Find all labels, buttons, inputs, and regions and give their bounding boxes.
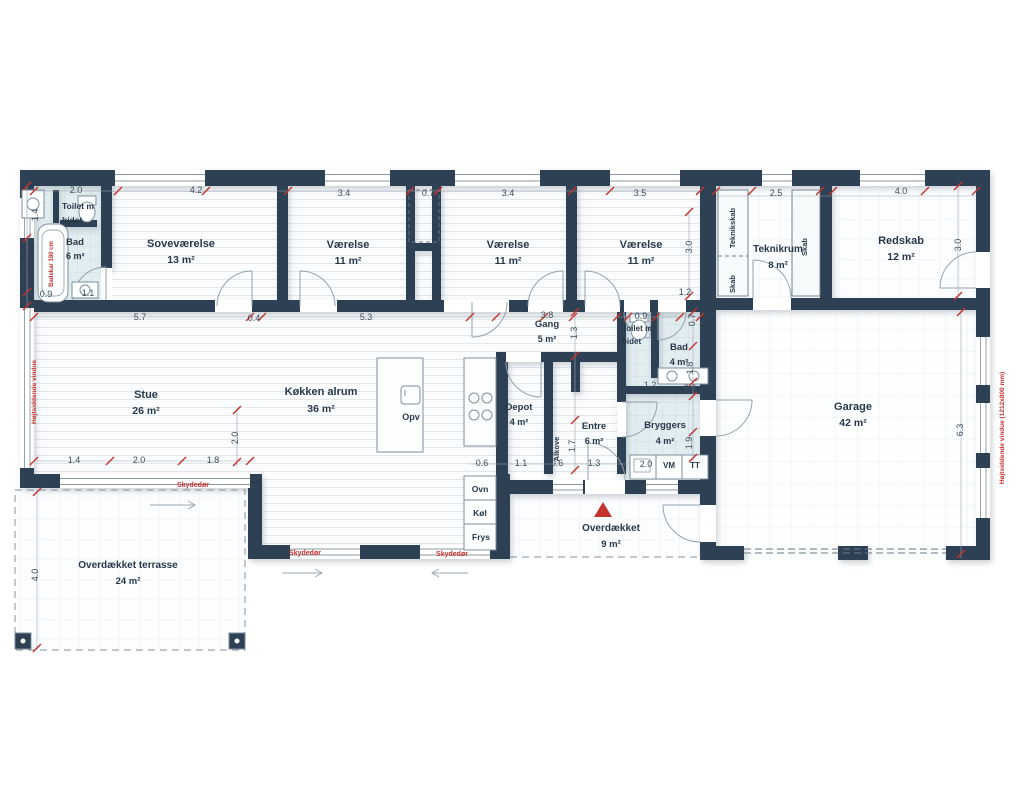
room-area-label: 9 m² [601, 539, 621, 550]
dimension-label: 0.7 [687, 314, 697, 327]
room-label: Toilet m [622, 324, 652, 333]
room-label: Redskab [878, 235, 924, 247]
dimension-label: 5.3 [360, 312, 373, 322]
room-label: Entre [582, 421, 606, 432]
room-label: Værelse [620, 239, 663, 251]
floor-plan-page: 2.04.23.40.73.43.52.54.01.41.60.91.15.70… [0, 0, 1024, 804]
room-label: Soveværelse [147, 238, 215, 250]
freezer-label: Frys [472, 532, 490, 542]
dishwasher-label: Opv [402, 412, 420, 422]
room-area-label: 4 m² [510, 417, 529, 427]
dimension-label: 0.4 [248, 313, 261, 323]
room-label: bidet [622, 337, 641, 346]
room-area-label: 11 m² [495, 255, 522, 267]
room-label: Garage [834, 401, 872, 413]
dimension-label: 2.0 [230, 432, 240, 445]
dimension-label: 1.4 [30, 209, 40, 222]
sliding-door-label: Skydedør [289, 550, 321, 557]
dimension-label: 2.0 [640, 459, 653, 469]
skab-label: Skab [800, 238, 809, 256]
dimension-label: 1.3 [569, 327, 579, 340]
room-label: Overdækket [582, 523, 640, 534]
dryer-label: TT [690, 461, 700, 470]
room-label: Stue [134, 389, 158, 401]
room-area-label: 12 m² [887, 251, 915, 263]
room-area-label: 36 m² [307, 403, 335, 415]
alkove-label: Alkove [552, 437, 561, 462]
room-area-label: 6 m² [66, 251, 85, 261]
sliding-door-label: Skydedør [436, 551, 468, 558]
room-area-label: 5 m² [538, 334, 557, 344]
floor-plan-svg: 2.04.23.40.73.43.52.54.01.41.60.91.15.70… [0, 0, 1024, 804]
room-area-label: 11 m² [628, 255, 655, 267]
dimension-label: 0.6 [476, 458, 489, 468]
room-label: bidet [62, 215, 82, 225]
room-area-label: 8 m² [768, 260, 788, 271]
dimension-label: 0.9 [635, 311, 648, 321]
room-label: Overdækket terrasse [78, 560, 178, 571]
room-area-label: 26 m² [132, 405, 160, 417]
dimension-label: 3.4 [502, 188, 515, 198]
dimension-label: 5.7 [134, 312, 147, 322]
dimension-label: 1.1 [515, 458, 528, 468]
dimension-label: 0.7 [422, 188, 435, 198]
room-area-label: 13 m² [167, 254, 195, 266]
room-area-label: 6 m² [585, 436, 604, 446]
vanity-2 [658, 368, 708, 384]
dimension-label: 6.3 [955, 424, 965, 437]
dimension-label: 3.0 [953, 239, 963, 252]
dimension-label: 1.2 [644, 380, 657, 390]
bathtub-note: Badekar 180 cm [49, 241, 55, 287]
room-label: Toilet m [62, 201, 94, 211]
room-label: Bad [66, 237, 84, 248]
room-label: Værelse [327, 239, 370, 251]
room-label: Bryggers [644, 420, 686, 431]
garage-floor [716, 310, 976, 560]
room-label: Bad [670, 342, 688, 353]
dimension-label: 1.4 [68, 455, 81, 465]
sliding-door-label: Skydedør [177, 482, 209, 489]
dimension-label: 1.3 [588, 458, 601, 468]
dimension-label: 4.0 [30, 569, 40, 582]
washing-machine-label: VM [663, 461, 675, 470]
teknikskab-label: Teknikskab [728, 207, 737, 248]
dimension-label: 1.6 [21, 261, 31, 274]
window-note: Højtsiddende vindue [31, 360, 38, 424]
kitchen-island [377, 358, 423, 452]
room-area-label: 42 m² [839, 417, 867, 429]
dimension-label: 4.0 [895, 186, 908, 196]
dimension-label: 1.9 [684, 437, 694, 450]
room-area-label: 24 m² [116, 576, 141, 587]
fridge-label: Køl [473, 508, 487, 518]
room-label: Køkken alrum [285, 386, 358, 398]
room-area-label: 11 m² [335, 255, 362, 267]
dimension-label: 0.9 [684, 383, 697, 393]
room-area-label: 4 m² [656, 436, 675, 446]
room-area-label: 4 m² [670, 357, 689, 367]
room-label: Depot [506, 402, 534, 413]
dimension-label: 2.0 [70, 185, 83, 195]
dimension-label: 1.1 [82, 288, 95, 298]
dimension-label: 3.0 [684, 241, 694, 254]
dimension-label: 1.7 [567, 440, 577, 453]
window-note: Højtsiddende vindue (1212x800 mm) [999, 372, 1006, 484]
dimension-label: 3.4 [338, 188, 351, 198]
skab-label: Skab [728, 275, 737, 293]
dimension-label: 1.8 [207, 455, 220, 465]
dimension-label: 2.5 [770, 188, 783, 198]
room-label: Værelse [487, 239, 530, 251]
dimension-label: 0.9 [40, 289, 53, 299]
dimension-label: 2.0 [133, 455, 146, 465]
kitchen-floor-south [248, 474, 496, 549]
dimension-label: 1.2 [679, 287, 692, 297]
dimension-label: 3.5 [634, 188, 647, 198]
room-label: Teknikrum [753, 244, 803, 255]
cooktop-counter [464, 358, 496, 446]
oven-label: Ovn [472, 484, 489, 494]
room-label: Gang [535, 319, 559, 330]
dimension-label: 4.2 [190, 185, 203, 195]
